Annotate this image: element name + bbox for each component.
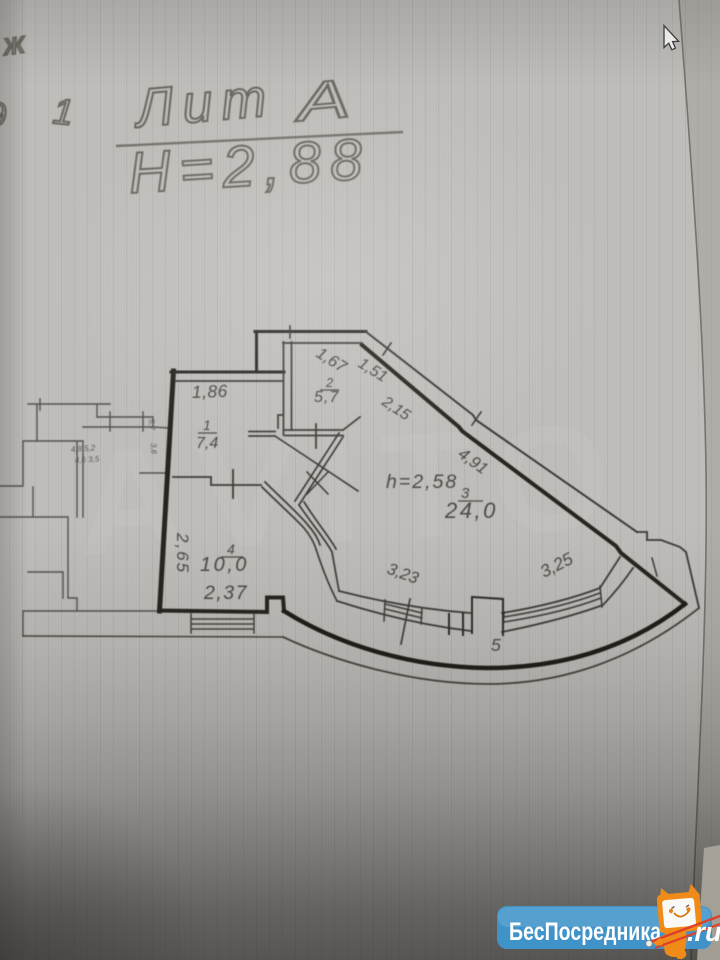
- svg-text:.ru: .ru: [687, 917, 720, 947]
- svg-text:БесПосредника: БесПосредника: [509, 918, 662, 946]
